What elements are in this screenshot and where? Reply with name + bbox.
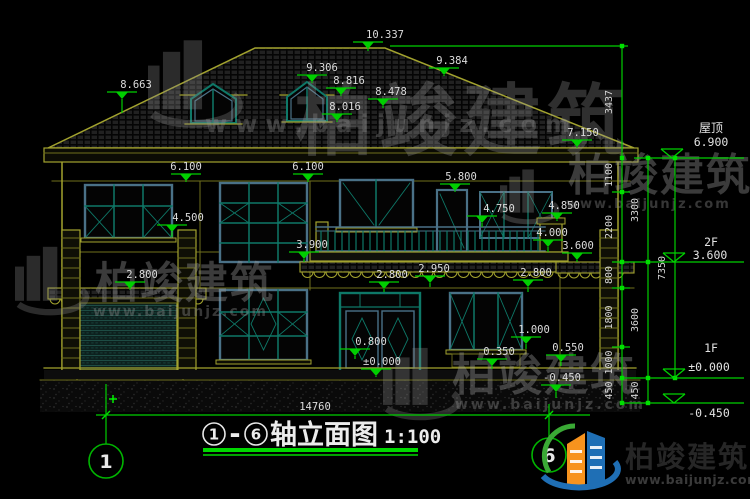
title-text: 轴立面图	[270, 419, 378, 451]
level-value-1f: ±0.000	[688, 360, 730, 374]
title-axis-end: 6	[251, 426, 261, 444]
axis-bubble-1: 1	[89, 444, 123, 478]
logo-brand-text: 柏竣建筑	[625, 440, 749, 474]
elev-mark-label-balcony_pier_top: 4.850	[548, 200, 580, 212]
level-value-2f: 3.600	[693, 248, 728, 262]
stair-window-2f	[220, 183, 307, 262]
elev-mark-label-band_bottom: 2.950	[418, 263, 450, 275]
elev-mark-label-wall_top_left: 6.100	[170, 161, 202, 173]
elev-mark-label-dormer_ridge: 9.306	[306, 62, 338, 74]
elev-mark-label-window_apron: 0.350	[483, 346, 515, 358]
chain-dim-1-2: 2200	[604, 215, 615, 239]
elev-mark-label-left_hip: 8.663	[120, 79, 152, 91]
title-scale: 1:100	[384, 426, 441, 448]
cad-elevation-canvas: 柏竣建筑 www.baijunjz.com 柏竣建筑 www.baijunjz.…	[0, 0, 750, 499]
watermark-url-bottom: www.baijunjz.com	[455, 397, 646, 413]
elev-mark-label-window_1f_top: 2.800	[520, 267, 552, 279]
elev-mark-label-garage_canopy: 2.800	[126, 269, 158, 281]
watermark-url-left: www.baijunjz.com	[93, 304, 268, 320]
elev-mark-label-ground_right: -0.450	[543, 372, 581, 384]
elev-mark-label-balcony_door_top: 5.800	[445, 171, 477, 183]
chain-dim-1-5: 1000	[604, 350, 615, 374]
logo-url-text: www.baijunjz.com	[625, 472, 750, 487]
balcony-slab	[310, 252, 568, 261]
elev-mark-label-entry_platform: ±0.000	[363, 356, 401, 368]
elev-mark-label-window_1f_sill: 1.000	[518, 324, 550, 336]
overall-width-dim: 14760	[299, 401, 331, 413]
watermark-url-top: www.baijunjz.com	[205, 110, 578, 138]
elev-mark-label-stair_window_sill_1f: 0.800	[355, 336, 387, 348]
elev-mark-label-dormer_eave: 8.816	[333, 75, 365, 87]
balcony-door	[437, 190, 467, 252]
elev-mark-label-window_2f_sill: 4.500	[172, 212, 204, 224]
level-value-ground: -0.450	[688, 406, 730, 420]
drawing-title: 1 - 6 轴立面图 1:100	[203, 419, 441, 455]
watermark-brand-left: 柏竣建筑	[95, 259, 275, 309]
elev-mark-label-right_plinth: 0.550	[552, 342, 584, 354]
chain-dim-1-1: 1100	[604, 163, 615, 187]
level-label-roof: 屋顶	[699, 121, 723, 135]
elev-mark-label-main_eave: 7.150	[567, 127, 599, 139]
window-2f-mid	[336, 180, 417, 232]
chain-dim-3-0: 7350	[657, 256, 668, 280]
chain-dim-1-0: 3437	[604, 90, 615, 114]
chain-dim-1-6: 450	[604, 381, 615, 399]
window-2f-left	[81, 185, 176, 242]
elev-mark-balcony_door_top: 5.800	[440, 171, 477, 192]
title-axis-start: 1	[209, 426, 219, 444]
elev-mark-label-dormer_sill: 8.016	[329, 101, 361, 113]
chain-dim-2-2: 450	[630, 381, 641, 399]
brand-logo: 柏竣建筑 www.baijunjz.com	[543, 426, 750, 487]
elev-mark-label-roof_valley: 8.478	[375, 86, 407, 98]
title-dash: -	[229, 419, 240, 450]
chain-dim-2-0: 3300	[630, 198, 641, 222]
elev-mark-label-stair_window_sill_2f: 3.900	[296, 239, 328, 251]
elev-mark-label-wing_eave: 3.600	[562, 240, 594, 252]
level-label-1f: 1F	[704, 341, 718, 355]
elevation-drawing: 柏竣建筑 www.baijunjz.com 柏竣建筑 www.baijunjz.…	[0, 0, 750, 499]
level-label-2f: 2F	[704, 235, 718, 249]
elev-mark-label-wall_top_mid: 6.100	[292, 161, 324, 173]
elev-mark-label-balcony_slab: 4.000	[536, 227, 568, 239]
level-value-roof: 6.900	[694, 135, 729, 149]
axis-bubble-1-label: 1	[99, 451, 112, 473]
chain-dim-2-1: 3600	[630, 308, 641, 332]
chain-dim-1-4: 1800	[604, 305, 615, 329]
elev-mark-label-apex: 10.337	[366, 29, 404, 41]
elev-mark-wall_top_left: 6.100	[170, 161, 202, 182]
chain-dim-1-3: 800	[604, 266, 615, 284]
elev-mark-label-entry_canopy: 2.800	[376, 269, 408, 281]
elev-mark-label-right_hip: 9.384	[436, 55, 468, 67]
logo-building-orange	[567, 433, 585, 486]
elev-mark-label-railing_top: 4.750	[483, 203, 515, 215]
elev-mark-wall_top_mid: 6.100	[292, 161, 324, 182]
